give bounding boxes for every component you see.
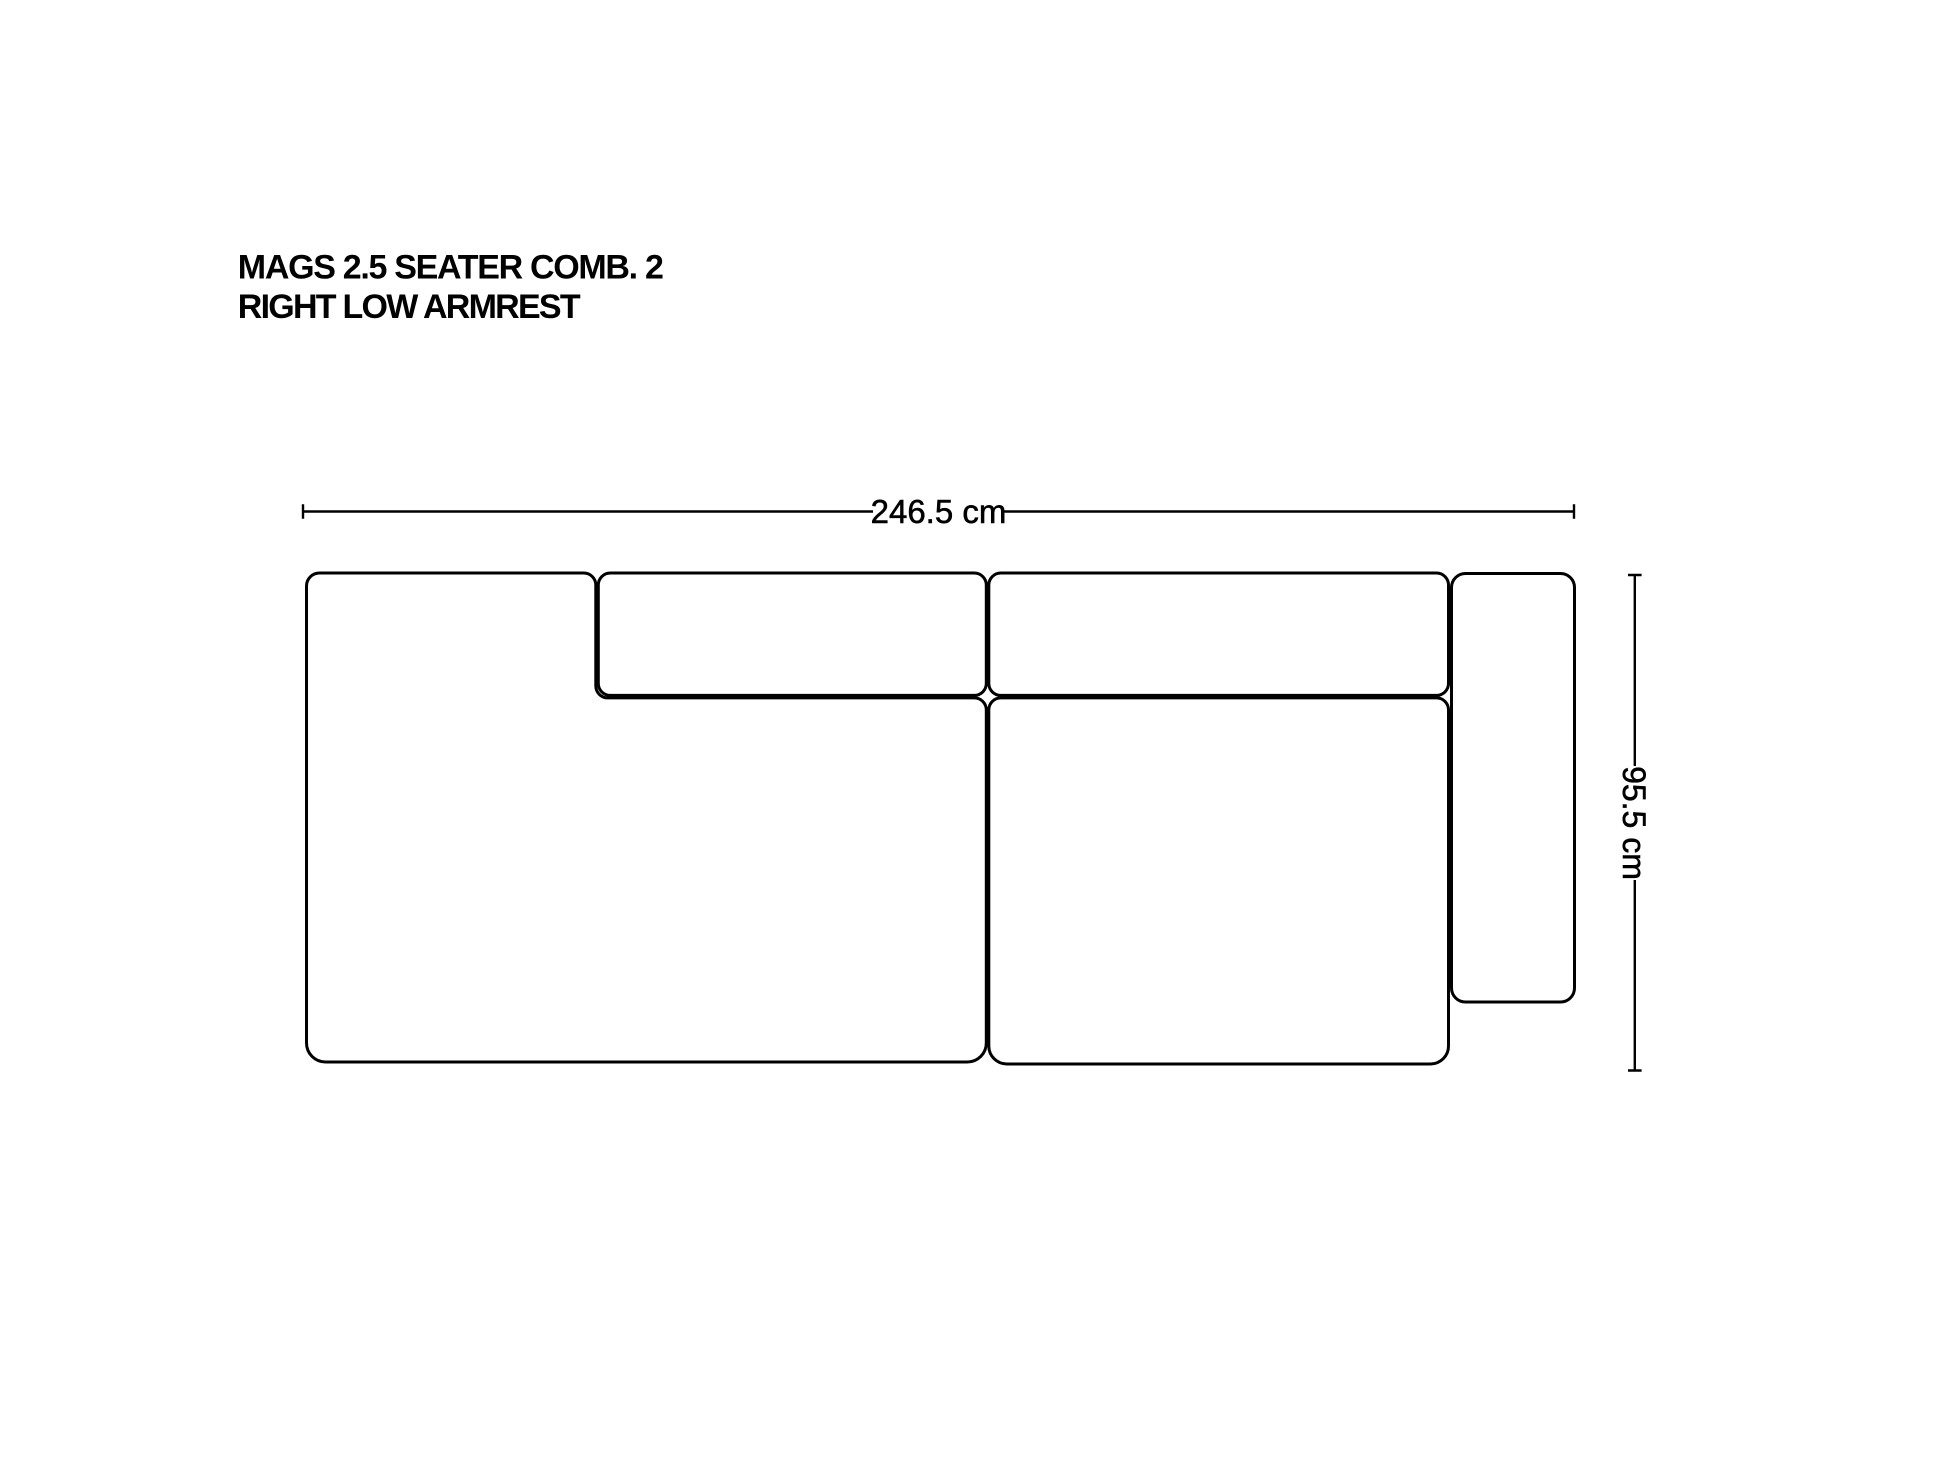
svg-text:RIGHT LOW ARMREST: RIGHT LOW ARMREST — [238, 288, 581, 326]
svg-text:MAGS 2.5 SEATER COMB. 2: MAGS 2.5 SEATER COMB. 2 — [238, 249, 663, 287]
svg-text:95.5 cm: 95.5 cm — [1616, 766, 1652, 880]
svg-text:246.5 cm: 246.5 cm — [871, 493, 1007, 530]
